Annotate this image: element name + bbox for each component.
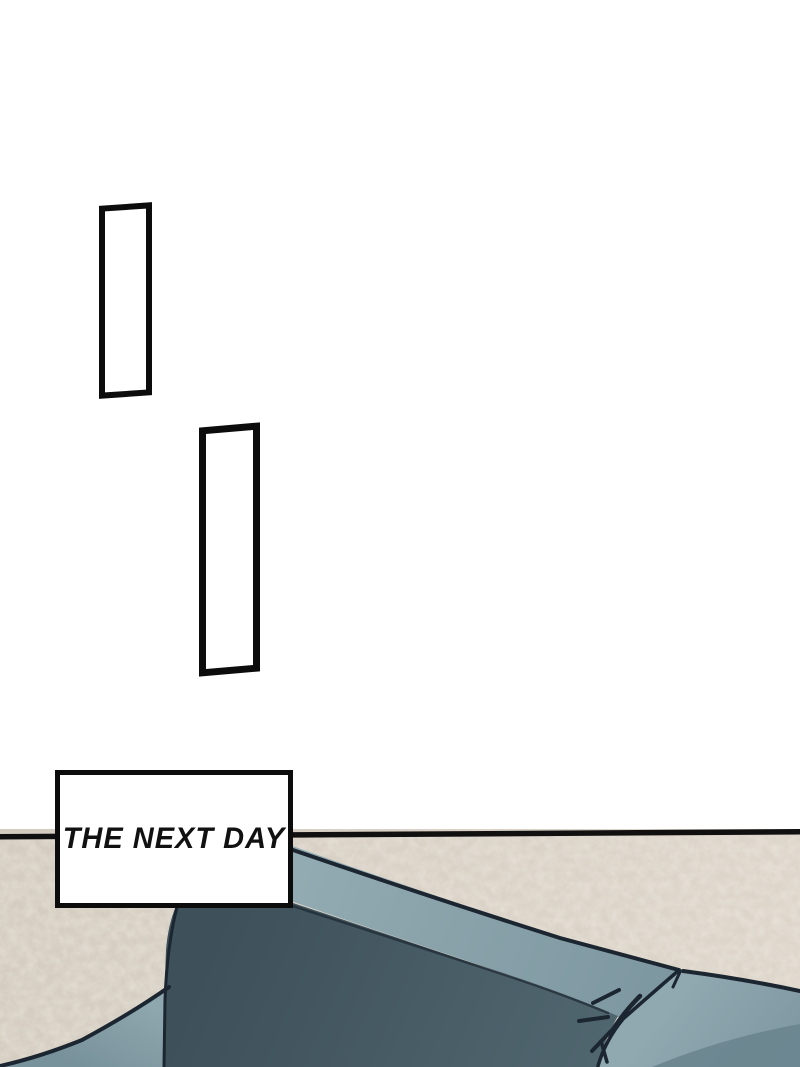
- caption-text: THE NEXT DAY: [63, 822, 286, 856]
- comic-page: THE NEXT DAY: [0, 0, 800, 1067]
- empty-panel-2: [199, 422, 260, 676]
- empty-panel-1: [99, 202, 152, 399]
- caption-box: THE NEXT DAY: [55, 770, 293, 908]
